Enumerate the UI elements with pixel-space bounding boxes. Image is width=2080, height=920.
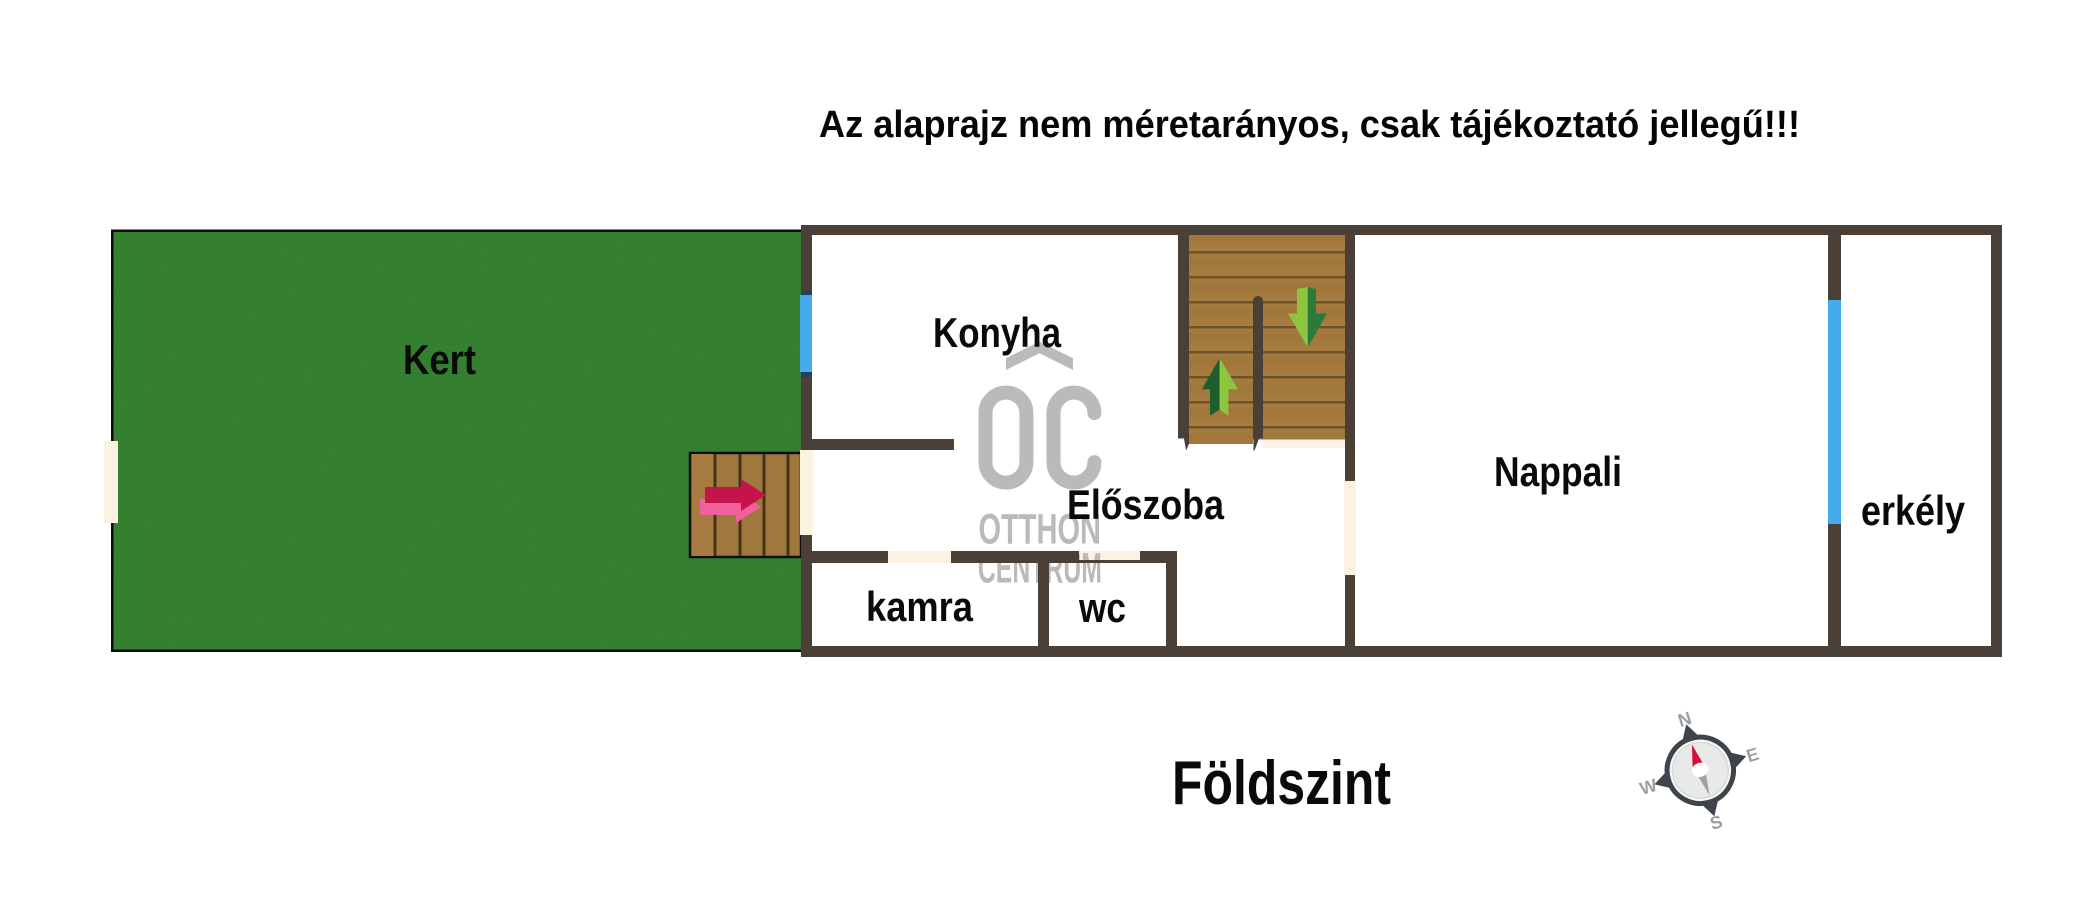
svg-text:erkély: erkély: [1861, 487, 1965, 534]
svg-text:wc: wc: [1078, 584, 1126, 631]
svg-text:Az alaprajz nem méretarányos,: Az alaprajz nem méretarányos, csak tájék…: [819, 104, 1800, 146]
svg-text:Földszint: Földszint: [1172, 749, 1391, 818]
svg-text:Előszoba: Előszoba: [1067, 481, 1225, 528]
svg-text:Nappali: Nappali: [1494, 448, 1622, 495]
svg-text:kamra: kamra: [866, 583, 974, 630]
svg-text:Konyha: Konyha: [933, 309, 1062, 356]
svg-text:Kert: Kert: [403, 336, 476, 383]
